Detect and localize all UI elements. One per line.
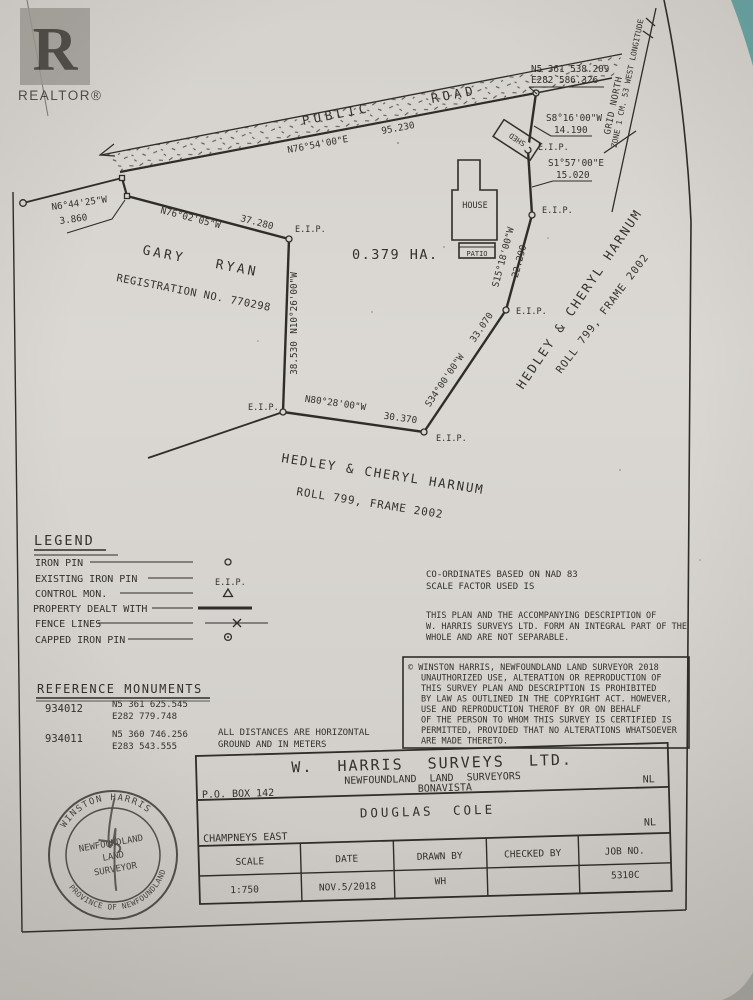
datum-note-line1: CO-ORDINATES BASED ON NAD 83 <box>426 570 578 580</box>
distances-note-line2: GROUND AND IN METERS <box>218 740 326 750</box>
value-scale: 1:750 <box>230 884 259 896</box>
southeast-eip: E.I.P. <box>516 307 547 317</box>
province-1: NL <box>643 774 655 785</box>
column-scale: SCALE <box>235 856 264 868</box>
east-upper-distance: 14.190 <box>554 125 588 136</box>
legend-item-control-mon: CONTROL MON. <box>35 589 107 600</box>
column-checked-by: CHECKED BY <box>504 848 562 861</box>
legend-item-fence-lines: FENCE LINES <box>35 619 101 630</box>
corner-northing: N5 361 538.209 <box>531 64 609 75</box>
monument-2-northing: N5 360 746.256 <box>112 730 188 740</box>
monument-1-easting: E282 779.748 <box>112 712 177 722</box>
column-drawn-by: DRAWN BY <box>417 851 463 863</box>
copyright-line7: PERMITTED, PROVIDED THAT NO ALTERATIONS … <box>421 726 678 736</box>
copyright-line3: THIS SURVEY PLAN AND DESCRIPTION IS PROH… <box>421 684 656 694</box>
monument-2-easting: E283 543.555 <box>112 742 177 752</box>
copyright-box: © WINSTON HARRIS, NEWFOUNDLAND LAND SURV… <box>403 657 689 748</box>
east-mid-distance: 15.020 <box>556 170 590 181</box>
legend-item-iron-pin: IRON PIN <box>35 558 83 569</box>
column-job-no: JOB NO. <box>605 846 645 858</box>
integral-note-line2: W. HARRIS SURVEYS LTD. FORM AN INTEGRAL … <box>426 622 687 632</box>
west-distance: 38.530 <box>289 341 300 375</box>
house-label: HOUSE <box>462 201 488 211</box>
east-upper-bearing: S8°16'00"W <box>546 113 602 124</box>
monument-1-id: 934012 <box>45 703 83 715</box>
province-2: NL <box>644 817 656 828</box>
value-date: NOV.5/2018 <box>319 881 377 894</box>
east-mid-bearing: S1°57'00"E <box>548 158 604 169</box>
legend-item-capped-iron-pin: CAPPED IRON PIN <box>35 635 125 646</box>
copyright-line4: BY LAW AS OUTLINED IN THE COPYRIGHT ACT.… <box>421 695 672 705</box>
legend-title: LEGEND <box>34 533 95 549</box>
survey-plan-scan: R REALTOR® PUBLIC ROAD N76°54'00"E 95.23… <box>0 0 753 1000</box>
po-box: P.O. BOX 142 <box>202 788 275 801</box>
datum-note-line2: SCALE FACTOR USED IS <box>426 582 534 592</box>
south-eip: E.I.P. <box>436 434 467 444</box>
copyright-line5: USE AND REPRODUCTION THEROF BY OR ON BEH… <box>421 705 641 715</box>
distances-note-line1: ALL DISTANCES ARE HORIZONTAL <box>218 728 370 738</box>
company-town: BONAVISTA <box>418 782 472 795</box>
copyright-line1: © WINSTON HARRIS, NEWFOUNDLAND LAND SURV… <box>408 663 659 673</box>
realtor-label: REALTOR® <box>18 88 102 103</box>
corner-easting: E282 586.326 <box>531 75 598 86</box>
east-upper-eip: E.I.P. <box>538 143 569 153</box>
survey-location: CHAMPNEYS EAST <box>203 832 288 845</box>
copyright-line6: OF THE PERSON TO WHOM THIS SURVEY IS CER… <box>421 716 672 726</box>
legend-eip-symbol-text: E.I.P. <box>215 578 246 588</box>
copyright-line8: ARE MADE THERETO. <box>421 737 508 747</box>
value-job-no: 5310C <box>611 870 640 882</box>
copyright-line2: UNAUTHORIZED USE, ALTERATION OR REPRODUC… <box>421 674 662 684</box>
east-mid-eip: E.I.P. <box>542 206 573 216</box>
legend-item-property-dealt-with: PROPERTY DEALT WITH <box>33 604 147 615</box>
legend-item-existing-iron-pin: EXISTING IRON PIN <box>35 574 137 585</box>
reference-monuments-title: REFERENCE MONUMENTS <box>37 682 203 696</box>
column-date: DATE <box>335 854 358 866</box>
patio-label: PATIO <box>466 250 487 258</box>
realtor-logo-r: R <box>33 16 79 84</box>
value-drawn-by: WH <box>435 876 447 887</box>
integral-note-line1: THIS PLAN AND THE ACCOMPANYING DESCRIPTI… <box>426 611 656 621</box>
north-eip: E.I.P. <box>295 225 326 235</box>
west-bearing: N10°26'00"W <box>289 272 300 334</box>
west-eip: E.I.P. <box>248 403 279 413</box>
parcel-area: 0.379 HA. <box>352 247 439 263</box>
monument-2-id: 934011 <box>45 733 83 745</box>
monument-1-northing: N5 361 625.545 <box>112 700 188 710</box>
realtor-watermark: R REALTOR® <box>18 8 102 103</box>
integral-note-line3: WHOLE AND ARE NOT SEPARABLE. <box>426 633 569 643</box>
